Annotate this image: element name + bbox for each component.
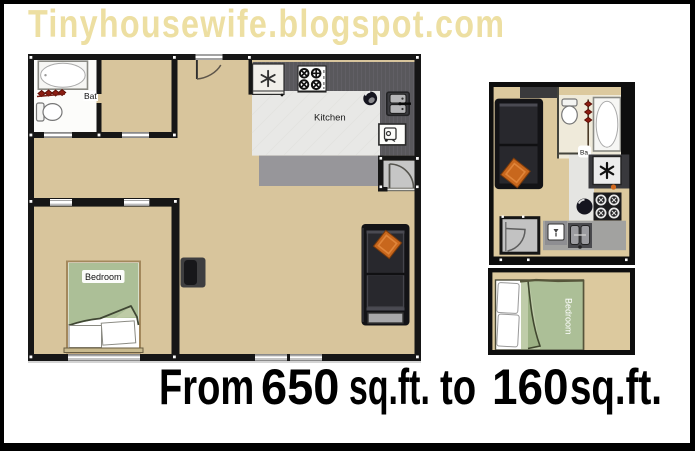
- svg-text:Bat: Bat: [84, 91, 97, 101]
- svg-text:Bedroom: Bedroom: [564, 298, 574, 335]
- svg-text:Bedroom: Bedroom: [85, 272, 122, 282]
- svg-text:Ba: Ba: [580, 149, 588, 156]
- svg-text:Kitchen: Kitchen: [314, 113, 346, 124]
